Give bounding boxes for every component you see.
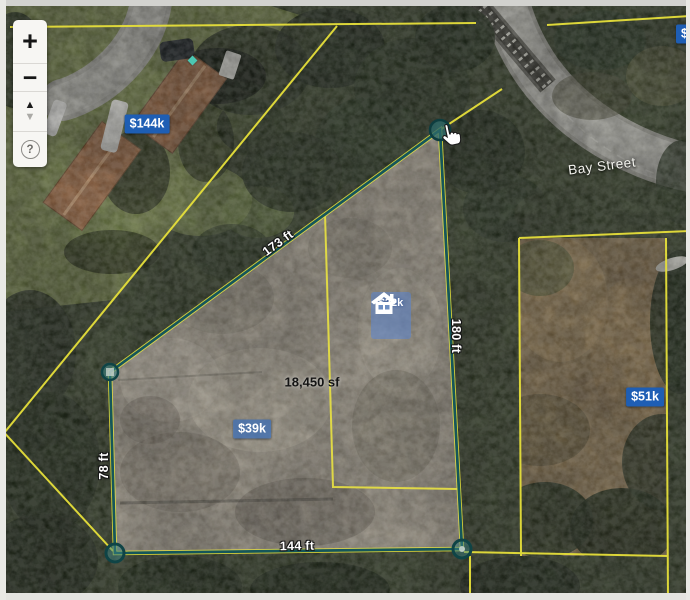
map-controls: + − ▲ ▼ ? (13, 20, 47, 167)
price-badge-144k[interactable]: $144k (125, 115, 170, 134)
price-badge-partial[interactable]: $ (676, 25, 690, 44)
price-badge-39k[interactable]: $39k (233, 420, 271, 439)
plus-icon: + (22, 26, 38, 57)
listing-marker[interactable]: $22k (371, 292, 411, 339)
map-viewport[interactable]: $144k $39k $51k $ $22k 18,450 sf 173 ft … (0, 0, 690, 600)
question-icon: ? (21, 140, 40, 159)
parcel-area-label: 18,450 sf (285, 375, 340, 390)
zoom-out-button[interactable]: − (13, 64, 47, 92)
dimension-label-left: 78 ft (97, 452, 111, 479)
vertex-marker-bottom-left[interactable] (106, 544, 124, 562)
zoom-in-button[interactable]: + (13, 20, 47, 64)
satellite-background (0, 0, 690, 600)
pan-button[interactable]: ▲ ▼ (13, 92, 47, 132)
arrow-up-icon: ▲ (25, 100, 36, 111)
house-icon (371, 292, 397, 314)
dimension-label-right: 180 ft (449, 319, 463, 353)
price-badge-51k[interactable]: $51k (626, 388, 664, 407)
arrow-down-icon: ▼ (25, 112, 36, 123)
help-button[interactable]: ? (13, 132, 47, 167)
dimension-label-bottom: 144 ft (280, 539, 315, 554)
